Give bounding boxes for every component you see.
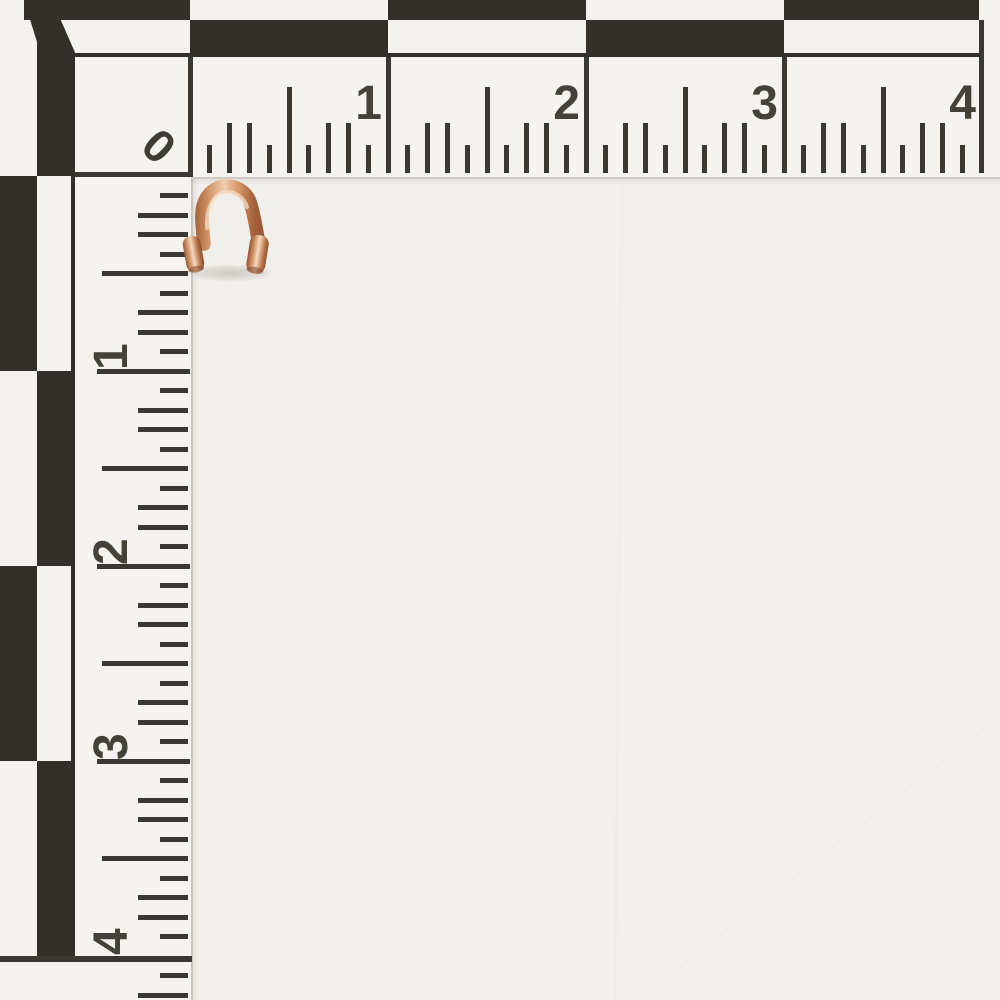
ruler-tick [346,123,351,173]
checker-square [784,0,979,20]
left-ruler-number-3: 3 [88,720,138,760]
ruler-tick [160,447,188,452]
ruler-tick [160,642,188,647]
top-ruler-number-2: 2 [510,80,580,130]
ruler-tick [445,123,450,173]
wire-guard-body [202,186,258,244]
ruler-tick [138,603,188,608]
ruler-tick [326,123,331,173]
ruler-tick [801,145,806,173]
ruler-tick [465,145,470,173]
ruler-tick [160,681,188,686]
ruler-tick [102,856,188,861]
ruler-tick [603,145,608,173]
top-ruler-number-4: 4 [906,80,976,130]
checker-square [0,176,37,371]
checker-square [37,761,71,958]
ruler-tick [138,915,188,920]
photo-scene: 1234 1234 0 [0,0,1000,1000]
ruler-tick [160,486,188,491]
ruler-tick [138,427,188,432]
ruler-tick [138,700,188,705]
ruler-tick [102,661,188,666]
ruler-tick [160,349,188,354]
ruler-tick [138,408,188,413]
copper-wire-guard [178,176,290,288]
inch-line [782,57,787,173]
inch-line [386,57,391,173]
ruler-tick [287,87,292,173]
ruler-tick [900,145,905,173]
ruler-tick [306,145,311,173]
left-ruler-number-1: 1 [88,330,138,370]
top-ruler-end-line [979,20,984,173]
ruler-tick [138,622,188,627]
ruler-tick [920,123,925,173]
inch-line [584,57,589,173]
ruler-tick [861,145,866,173]
ruler-tick [623,123,628,173]
ruler-tick [160,934,188,939]
ruler-tick [138,798,188,803]
ruler-tick [544,123,549,173]
ruler-tick [425,123,430,173]
top-ruler-number-3: 3 [708,80,778,130]
left-ruler-end-line [0,956,192,962]
wire-guard-highlight [207,192,247,228]
ruler-tick [960,145,965,173]
border-rule-top [73,53,979,57]
ruler-tick [227,123,232,173]
ruler-tick [207,145,212,173]
ruler-tick [138,993,188,998]
ruler-tick [485,87,490,173]
checker-square [190,20,388,57]
ruler-tick [663,145,668,173]
ruler-tick [742,123,747,173]
ruler-tick [762,145,767,173]
ruler-tick [366,145,371,173]
checker-square [0,566,37,761]
ruler-tick [247,123,252,173]
ruler-tick [138,330,188,335]
top-ruler-number-1: 1 [312,80,382,130]
ruler-tick [267,145,272,173]
ruler-tick [683,87,688,173]
ruler-tick [722,123,727,173]
ruler-tick [160,544,188,549]
ruler-tick [881,87,886,173]
ruler-tick [138,720,188,725]
ruler-tick [138,310,188,315]
ruler-tick [160,739,188,744]
ruler-tick [138,505,188,510]
ruler-tick [564,145,569,173]
checkerboard-corner-miter [0,0,200,200]
ruler-tick [940,123,945,173]
background-crease [654,653,1000,987]
checker-square [586,20,784,57]
ruler-tick [524,123,529,173]
ruler-tick [160,837,188,842]
card-edge-horizontal-shadow [191,179,1000,185]
ruler-tick [160,973,188,978]
checker-square [388,0,586,20]
ruler-tick [138,525,188,530]
left-ruler-number-2: 2 [88,525,138,565]
left-ruler-number-4: 4 [88,915,138,955]
ruler-tick [102,271,188,276]
checker-square [37,371,71,566]
ruler-tick [160,291,188,296]
ruler-tick [841,123,846,173]
ruler-tick [821,123,826,173]
ruler-tick [160,388,188,393]
ruler-tick [643,123,648,173]
ruler-tick [160,876,188,881]
ruler-tick [160,778,188,783]
ruler-tick [504,145,509,173]
background-crease [613,182,623,1000]
ruler-tick [405,145,410,173]
ruler-tick [102,466,188,471]
card-edge-vertical-shadow [193,177,199,1000]
ruler-tick [160,583,188,588]
ruler-tick [138,895,188,900]
ruler-tick [138,817,188,822]
ruler-tick [702,145,707,173]
